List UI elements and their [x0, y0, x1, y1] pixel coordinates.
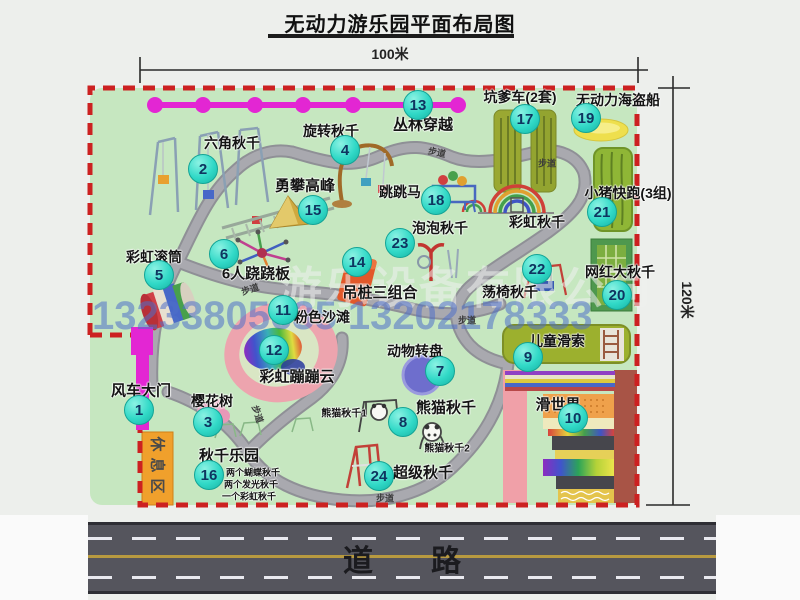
badge-8: 8	[388, 407, 418, 437]
label-panda-swing-2: 熊猫秋千2	[424, 440, 470, 455]
label-bubble-swing: 泡泡秋千	[412, 218, 468, 238]
badge-7: 7	[425, 356, 455, 386]
label-climbing-peak: 勇攀高峰	[275, 175, 335, 196]
badge-2: 2	[188, 154, 218, 184]
path-label: 步道	[376, 492, 394, 505]
rest-area-label: 休息区	[148, 436, 169, 499]
label-panda-swing: 熊猫秋千	[416, 397, 476, 418]
badge-1: 1	[124, 395, 154, 425]
badge-24: 24	[364, 461, 394, 491]
label-super-swing: 超级秋千	[393, 462, 453, 483]
label-chair-swing: 荡椅秋千	[482, 282, 538, 302]
badge-19: 19	[571, 103, 601, 133]
badge-18: 18	[421, 185, 451, 215]
page-title: 无动力游乐园平面布局图	[285, 8, 516, 37]
badge-23: 23	[385, 228, 415, 258]
width-dimension-label: 100米	[371, 44, 408, 64]
badge-3: 3	[193, 407, 223, 437]
badge-5: 5	[144, 260, 174, 290]
badge-11: 11	[268, 295, 298, 325]
label-hanging-piles: 吊桩三组合	[342, 282, 417, 303]
badge-21: 21	[587, 197, 617, 227]
label-panda-swing-1: 熊猫秋千1	[321, 405, 367, 420]
badge-9: 9	[513, 342, 543, 372]
path-label: 步道	[538, 157, 556, 170]
badge-14: 14	[342, 247, 372, 277]
badge-4: 4	[330, 135, 360, 165]
label-jumping-horse: 跳跳马	[379, 182, 421, 202]
badge-15: 15	[298, 195, 328, 225]
badge-12: 12	[259, 335, 289, 365]
badge-20: 20	[602, 280, 632, 310]
height-dimension-label: 120米	[677, 281, 697, 318]
label-swing-park-note-3: 一个彩虹秋千	[222, 490, 276, 503]
path-label: 步道	[458, 314, 476, 327]
slide-world-icon	[503, 370, 637, 503]
label-rainbow-swing: 彩虹秋千	[509, 212, 565, 232]
park-plan-screenshot: 无动力游乐园平面布局图 100米 120米	[0, 0, 800, 600]
badge-6: 6	[209, 239, 239, 269]
label-hexagon-swing: 六角秋千	[204, 133, 260, 153]
label-rainbow-bounce-cloud: 彩虹蹦蹦云	[259, 366, 334, 387]
title-underline	[268, 34, 514, 38]
badge-13: 13	[403, 90, 433, 120]
label-big-net-swing: 网红大秋千	[585, 262, 655, 282]
badge-16: 16	[194, 460, 224, 490]
road: 道路	[88, 522, 716, 594]
badge-10: 10	[558, 403, 588, 433]
label-pink-beach: 粉色沙滩	[294, 307, 350, 327]
badge-22: 22	[522, 254, 552, 284]
badge-17: 17	[510, 104, 540, 134]
road-label: 道路	[88, 525, 716, 591]
